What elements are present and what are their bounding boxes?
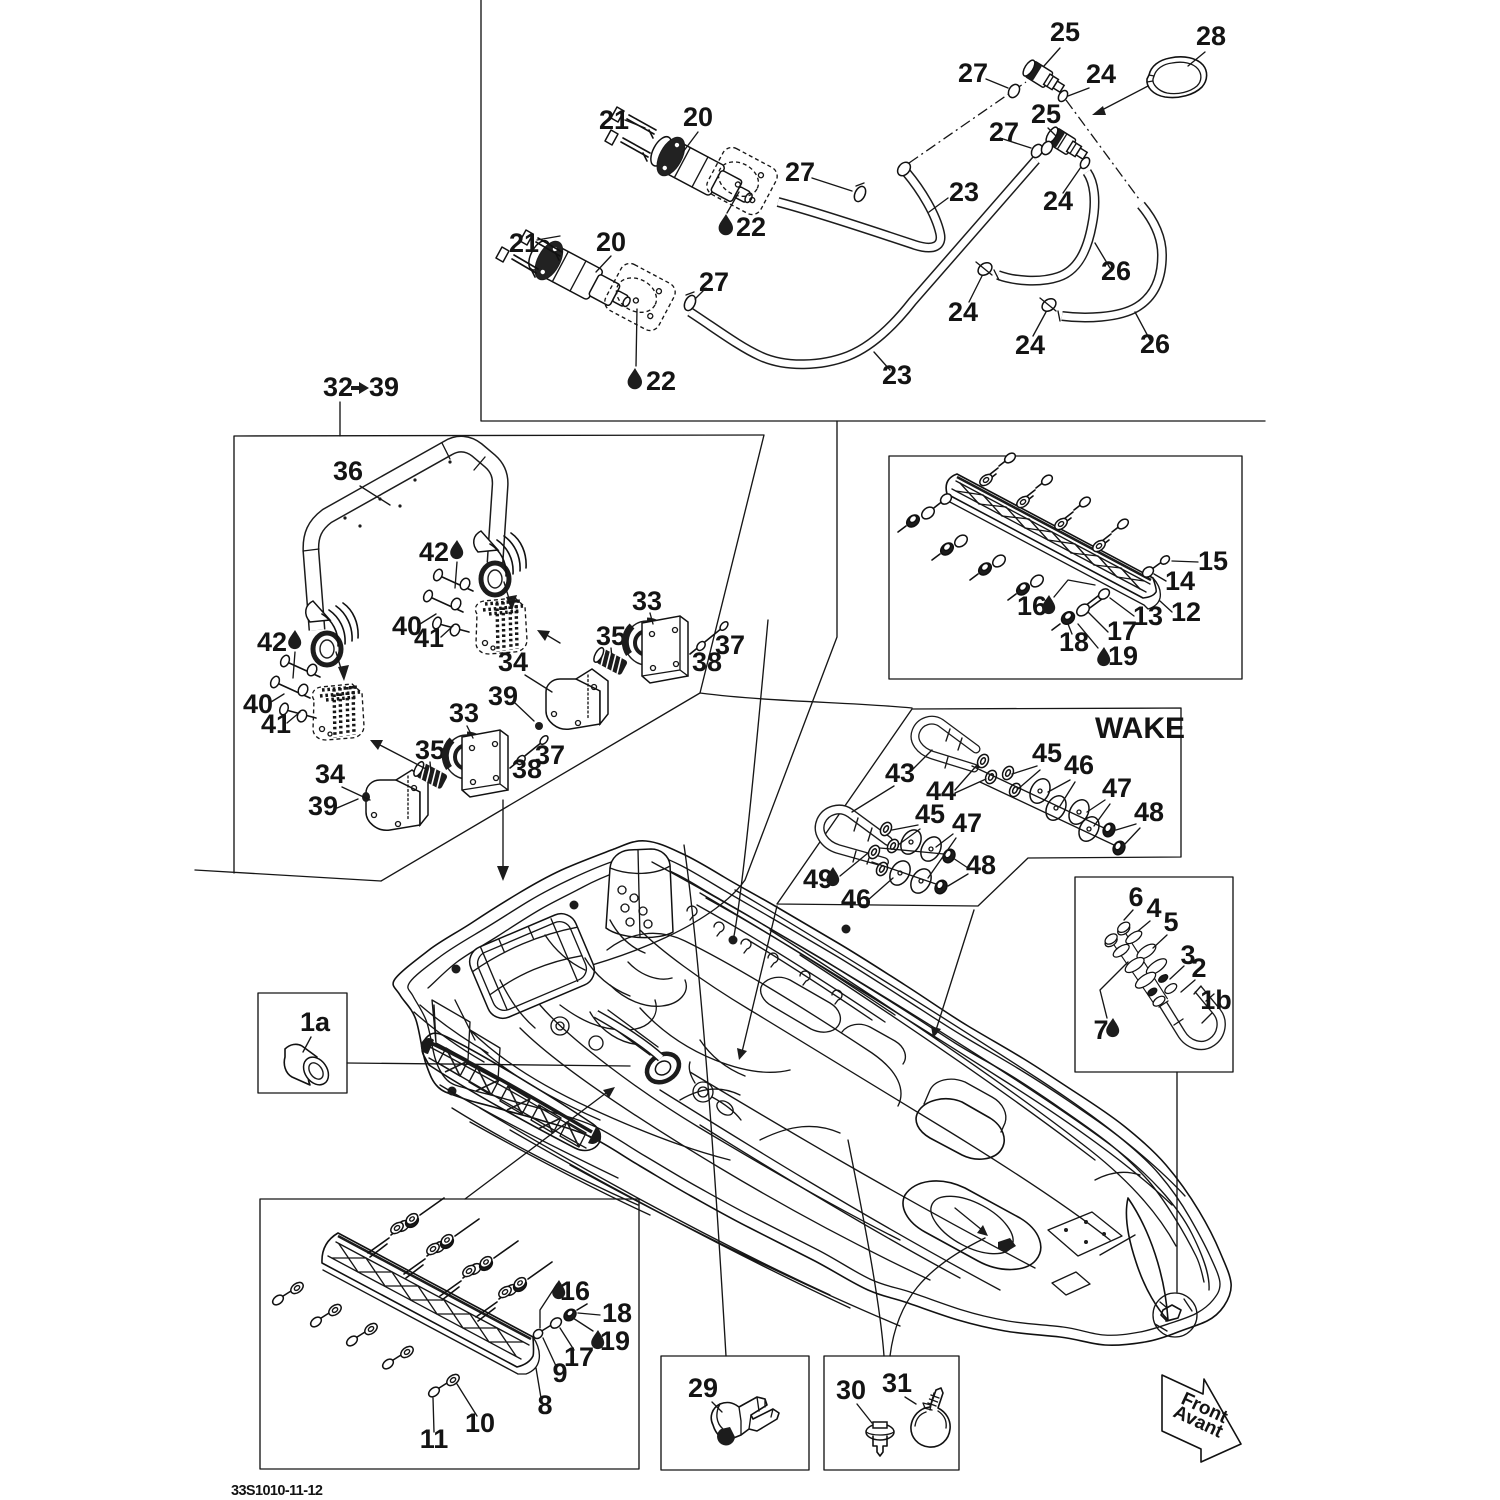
svg-text:31: 31	[882, 1368, 912, 1398]
svg-text:27: 27	[958, 58, 988, 88]
svg-text:25: 25	[1050, 17, 1080, 47]
svg-text:39: 39	[308, 791, 338, 821]
svg-text:47: 47	[952, 808, 982, 838]
svg-text:29: 29	[688, 1373, 718, 1403]
svg-text:WAKE: WAKE	[1095, 712, 1185, 745]
svg-text:32: 32	[323, 372, 353, 402]
svg-text:14: 14	[1165, 566, 1195, 596]
svg-text:36: 36	[333, 456, 363, 486]
svg-text:1a: 1a	[300, 1007, 331, 1037]
svg-text:45: 45	[915, 799, 945, 829]
svg-text:41: 41	[261, 709, 291, 739]
svg-text:17: 17	[564, 1342, 594, 1372]
svg-text:34: 34	[498, 647, 528, 677]
svg-text:46: 46	[841, 884, 871, 914]
svg-text:26: 26	[1140, 329, 1170, 359]
svg-text:30: 30	[836, 1375, 866, 1405]
svg-text:42: 42	[419, 537, 449, 567]
svg-text:39: 39	[369, 372, 399, 402]
svg-text:2: 2	[1191, 953, 1206, 983]
svg-text:19: 19	[600, 1326, 630, 1356]
svg-text:18: 18	[602, 1298, 632, 1328]
svg-text:6: 6	[1128, 882, 1143, 912]
svg-text:28: 28	[1196, 21, 1226, 51]
svg-text:45: 45	[1032, 738, 1062, 768]
svg-text:1b: 1b	[1200, 985, 1232, 1015]
svg-text:10: 10	[465, 1408, 495, 1438]
svg-text:42: 42	[257, 627, 287, 657]
svg-text:27: 27	[699, 267, 729, 297]
svg-text:27: 27	[785, 157, 815, 187]
svg-text:13: 13	[1133, 601, 1163, 631]
svg-text:46: 46	[1064, 750, 1094, 780]
svg-text:24: 24	[1086, 59, 1116, 89]
svg-text:12: 12	[1171, 597, 1201, 627]
svg-text:19: 19	[1108, 641, 1138, 671]
svg-text:33: 33	[449, 698, 479, 728]
svg-text:47: 47	[1102, 773, 1132, 803]
svg-text:35: 35	[596, 621, 626, 651]
svg-text:43: 43	[885, 758, 915, 788]
svg-text:15: 15	[1198, 546, 1228, 576]
svg-text:33S1010-11-12: 33S1010-11-12	[231, 1483, 323, 1499]
svg-text:24: 24	[1043, 186, 1073, 216]
svg-text:23: 23	[949, 177, 979, 207]
svg-text:33: 33	[632, 586, 662, 616]
svg-text:34: 34	[315, 759, 345, 789]
svg-text:20: 20	[683, 102, 713, 132]
svg-text:24: 24	[1015, 330, 1045, 360]
svg-text:5: 5	[1163, 907, 1178, 937]
svg-text:23: 23	[882, 360, 912, 390]
svg-text:35: 35	[415, 735, 445, 765]
svg-text:48: 48	[966, 850, 996, 880]
svg-text:4: 4	[1146, 893, 1161, 923]
svg-text:41: 41	[414, 623, 444, 653]
svg-text:22: 22	[736, 212, 766, 242]
svg-text:22: 22	[646, 366, 676, 396]
svg-text:21: 21	[509, 228, 539, 258]
svg-text:38: 38	[512, 754, 542, 784]
svg-text:27: 27	[989, 117, 1019, 147]
svg-text:38: 38	[692, 647, 722, 677]
svg-text:39: 39	[488, 681, 518, 711]
svg-text:48: 48	[1134, 797, 1164, 827]
svg-text:24: 24	[948, 297, 978, 327]
svg-text:25: 25	[1031, 99, 1061, 129]
svg-text:20: 20	[596, 227, 626, 257]
